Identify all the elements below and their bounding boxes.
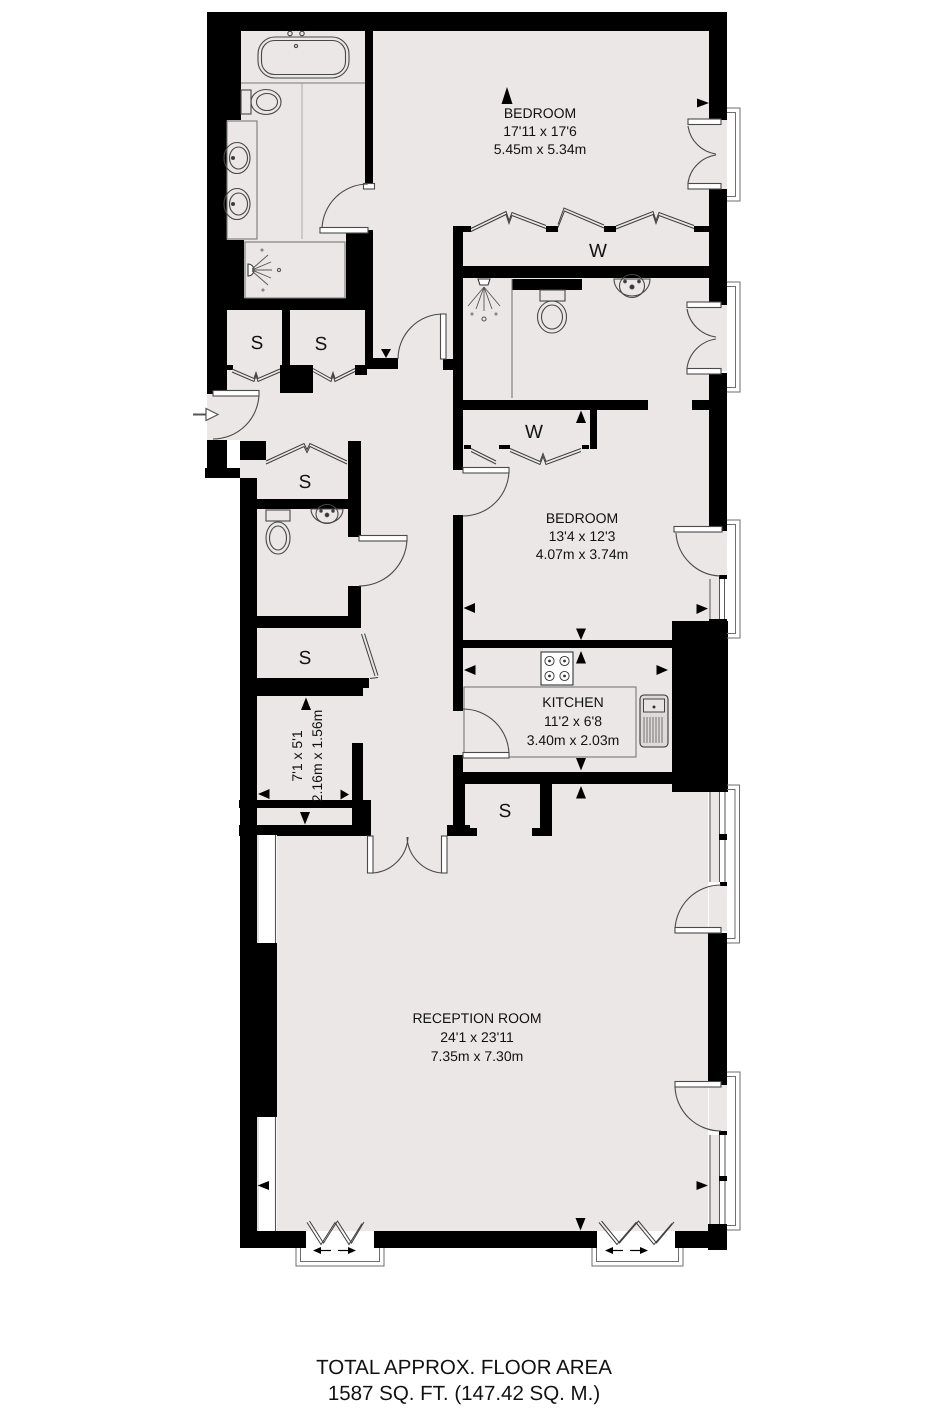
svg-text:7.35m x 7.30m: 7.35m x 7.30m (431, 1048, 524, 1064)
svg-text:3.40m x 2.03m: 3.40m x 2.03m (527, 732, 620, 748)
svg-text:11'2 x 6'8: 11'2 x 6'8 (544, 713, 602, 729)
svg-text:KITCHEN: KITCHEN (542, 694, 603, 710)
svg-text:S: S (299, 648, 312, 669)
svg-text:4.07m x 3.74m: 4.07m x 3.74m (536, 546, 629, 562)
svg-text:RECEPTION ROOM: RECEPTION ROOM (412, 1010, 541, 1026)
svg-text:13'4 x 12'3: 13'4 x 12'3 (549, 528, 616, 544)
svg-text:TOTAL APPROX. FLOOR AREA: TOTAL APPROX. FLOOR AREA (316, 1356, 612, 1379)
svg-text:17'11 x 17'6: 17'11 x 17'6 (503, 123, 577, 139)
svg-text:7'1 x 5'1: 7'1 x 5'1 (289, 730, 305, 781)
svg-text:S: S (299, 472, 312, 493)
svg-text:S: S (499, 801, 512, 822)
svg-text:BEDROOM: BEDROOM (546, 510, 618, 526)
svg-text:5.45m x 5.34m: 5.45m x 5.34m (494, 141, 587, 157)
svg-text:1587 SQ. FT. (147.42 SQ. M.): 1587 SQ. FT. (147.42 SQ. M.) (328, 1382, 600, 1405)
svg-text:W: W (525, 422, 543, 443)
svg-text:S: S (315, 334, 328, 355)
svg-text:BEDROOM: BEDROOM (504, 105, 576, 121)
svg-text:2.16m x 1.56m: 2.16m x 1.56m (309, 710, 325, 803)
svg-text:S: S (251, 333, 264, 354)
svg-text:W: W (589, 241, 607, 262)
svg-text:24'1 x 23'11: 24'1 x 23'11 (440, 1029, 514, 1045)
